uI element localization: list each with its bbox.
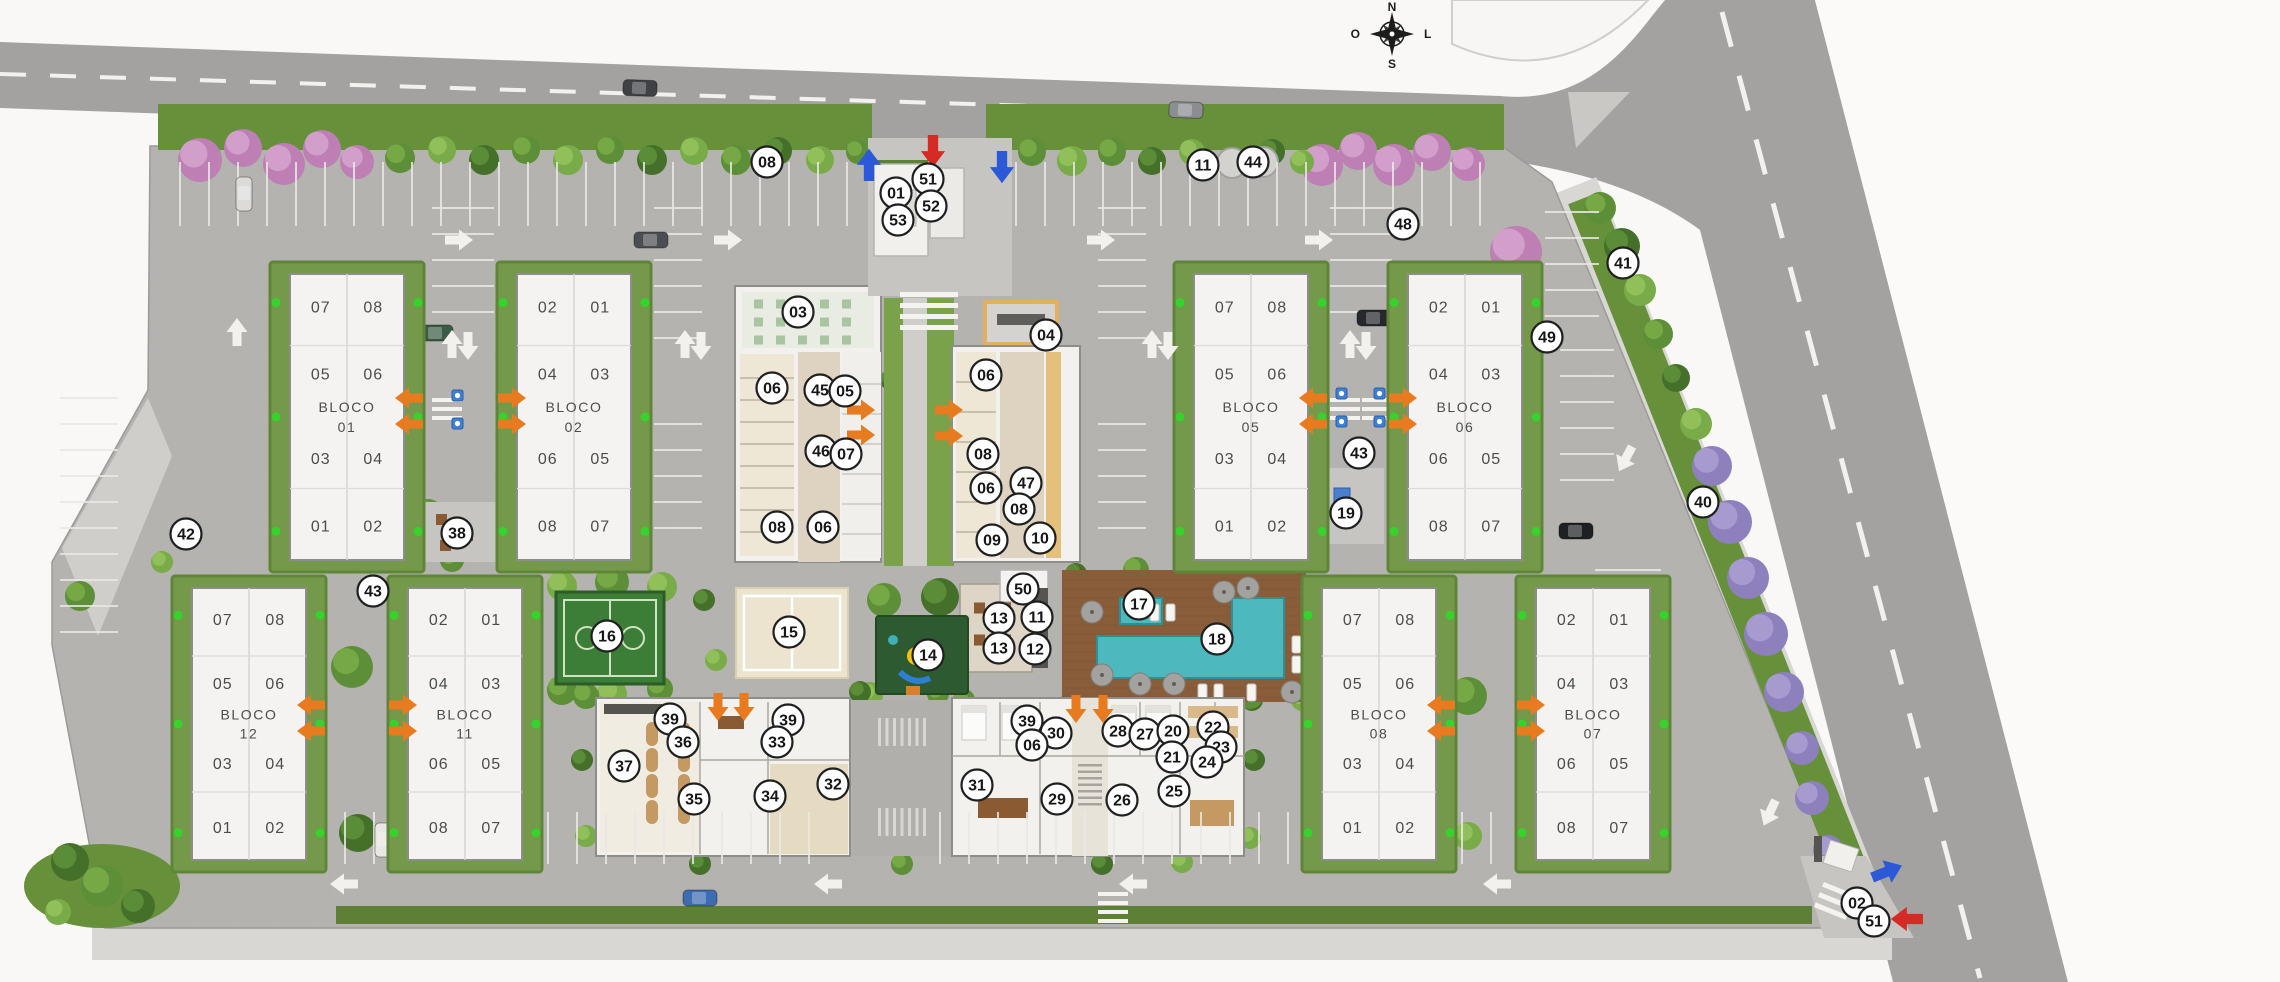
purple-tree-icon: [1795, 781, 1829, 815]
parked-car: [683, 890, 717, 906]
garden-light-icon: [1304, 720, 1313, 729]
unit-number: 03: [1481, 367, 1501, 384]
garden-light-icon: [1518, 611, 1527, 620]
compass-east-label: L: [1424, 27, 1431, 41]
unit-number: 03: [1215, 451, 1235, 468]
tree-icon: [385, 143, 415, 173]
tree-icon: [121, 889, 155, 923]
marker-number: 21: [1163, 750, 1181, 767]
amenity-marker-38[interactable]: 38: [442, 518, 473, 549]
unit-number: 04: [1429, 367, 1449, 384]
tree-icon: [45, 899, 71, 925]
amenity-marker-49[interactable]: 49: [1532, 322, 1563, 353]
garden-light-icon: [1660, 828, 1669, 837]
marker-number: 25: [1165, 784, 1183, 801]
garden-light-icon: [316, 611, 325, 620]
amenity-marker-04[interactable]: 04: [1031, 320, 1062, 351]
unit-number: 08: [538, 518, 558, 535]
garden-light-icon: [1660, 611, 1669, 620]
block-number: 07: [1584, 725, 1603, 741]
block-number: 05: [1242, 419, 1261, 435]
tree-icon: [1454, 822, 1482, 850]
unit-number: 08: [1267, 299, 1287, 316]
garden-light-icon: [1532, 298, 1541, 307]
block-number: 08: [1370, 725, 1389, 741]
amenity-marker-26[interactable]: 26: [1107, 785, 1138, 816]
unit-number: 06: [1429, 451, 1449, 468]
amenity-marker-41[interactable]: 41: [1608, 248, 1639, 279]
compass-south-label: S: [1388, 57, 1396, 71]
flowering-tree-icon: [340, 145, 374, 179]
block-label: BLOCO: [220, 706, 277, 722]
tree-icon: [575, 825, 597, 847]
marker-number: 31: [968, 778, 986, 795]
unit-number: 03: [311, 451, 331, 468]
marker-number: 32: [824, 777, 842, 794]
garden-light-icon: [532, 720, 541, 729]
marker-number: 04: [1037, 328, 1055, 345]
unit-number: 02: [363, 518, 383, 535]
unit-number: 01: [1481, 299, 1501, 316]
lounger: [1247, 684, 1256, 701]
unit-number: 06: [363, 367, 383, 384]
unit-number: 03: [213, 756, 233, 773]
flowering-tree-icon: [263, 143, 305, 185]
residential-block-06[interactable]: 0201040306050807BLOCO06: [1388, 262, 1542, 572]
unit-number: 05: [1215, 367, 1235, 384]
garden-light-icon: [1176, 298, 1185, 307]
amenity-marker-08[interactable]: 08: [968, 439, 999, 470]
parked-car: [236, 177, 252, 211]
accessible-parking-icon: [452, 418, 463, 429]
marker-number: 12: [1026, 642, 1044, 659]
marker-number: 51: [1865, 914, 1883, 931]
tree-icon: [867, 583, 901, 617]
amenity-marker-09[interactable]: 09: [977, 525, 1008, 556]
block-label: BLOCO: [1222, 399, 1279, 415]
marker-number: 08: [758, 155, 776, 172]
residential-block-08[interactable]: 0708050603040102BLOCO08: [1302, 576, 1456, 872]
amenity-marker-43[interactable]: 43: [1344, 438, 1375, 469]
garden-light-icon: [532, 828, 541, 837]
amenity-marker-52[interactable]: 52: [916, 191, 947, 222]
umbrella-icon: [1163, 673, 1185, 695]
residential-block-02[interactable]: 0201040306050807BLOCO02: [497, 262, 651, 572]
garden-light-icon: [1660, 720, 1669, 729]
tree-icon: [1018, 138, 1046, 166]
parked-car: [634, 232, 668, 248]
parked-car: [1169, 101, 1204, 118]
umbrella-icon: [1081, 601, 1103, 623]
marker-number: 37: [615, 759, 633, 776]
marker-number: 20: [1164, 724, 1182, 741]
marker-number: 13: [990, 641, 1008, 658]
amenity-marker-12[interactable]: 12: [1020, 634, 1051, 665]
unit-number: 06: [429, 756, 449, 773]
unit-number: 03: [590, 367, 610, 384]
block-number: 11: [456, 725, 474, 741]
tree-icon: [806, 146, 834, 174]
unit-number: 04: [1557, 676, 1577, 693]
residential-block-05[interactable]: 0708050603040102BLOCO05: [1174, 262, 1328, 572]
marker-number: 19: [1337, 506, 1355, 523]
marker-number: 29: [1048, 792, 1066, 809]
unit-number: 01: [311, 518, 331, 535]
marker-number: 06: [763, 381, 781, 398]
parked-car: [1357, 310, 1391, 326]
garden-light-icon: [1176, 413, 1185, 422]
unit-number: 05: [1609, 756, 1629, 773]
tree-icon: [1584, 192, 1616, 224]
amenity-marker-32[interactable]: 32: [818, 769, 849, 800]
garden-light-icon: [499, 527, 508, 536]
flowering-tree-icon: [1339, 132, 1377, 170]
purple-tree-icon: [1744, 612, 1788, 656]
amenity-marker-50[interactable]: 50: [1008, 574, 1039, 605]
unit-number: 08: [1395, 612, 1415, 629]
amenity-marker-25[interactable]: 25: [1159, 776, 1190, 807]
amenity-marker-06[interactable]: 06: [971, 473, 1002, 504]
accessible-parking-icon: [1336, 416, 1347, 427]
unit-number: 05: [213, 676, 233, 693]
amenity-marker-08[interactable]: 08: [752, 147, 783, 178]
marker-number: 50: [1014, 582, 1032, 599]
unit-number: 06: [265, 676, 285, 693]
marker-number: 36: [674, 735, 692, 752]
garden-light-icon: [1390, 298, 1399, 307]
marker-number: 16: [598, 629, 616, 646]
tree-icon: [693, 589, 715, 611]
unit-number: 02: [265, 820, 285, 837]
garden-light-icon: [1390, 527, 1399, 536]
marker-number: 42: [177, 527, 195, 544]
marker-number: 17: [1130, 597, 1148, 614]
unit-number: 04: [538, 367, 558, 384]
marker-number: 15: [780, 625, 798, 642]
amenity-marker-17[interactable]: 17: [1124, 589, 1155, 620]
amenity-marker-11[interactable]: 11: [1188, 150, 1219, 181]
unit-number: 03: [1609, 676, 1629, 693]
amenity-marker-06[interactable]: 06: [757, 373, 788, 404]
umbrella-icon: [1237, 577, 1259, 599]
tree-icon: [891, 853, 913, 875]
marker-number: 51: [919, 172, 937, 189]
unit-number: 05: [1343, 676, 1363, 693]
marker-number: 41: [1614, 256, 1632, 273]
marker-number: 52: [922, 199, 940, 216]
unit-number: 07: [1215, 299, 1235, 316]
unit-number: 01: [590, 299, 610, 316]
block-label: BLOCO: [1350, 706, 1407, 722]
amenity-marker-06[interactable]: 06: [1017, 730, 1048, 761]
unit-number: 06: [1267, 367, 1287, 384]
amenity-marker-36[interactable]: 36: [668, 727, 699, 758]
tree-icon: [469, 145, 499, 175]
garden-light-icon: [174, 828, 183, 837]
garden-light-icon: [1304, 828, 1313, 837]
garden-light-icon: [1318, 527, 1327, 536]
garden-light-icon: [272, 527, 281, 536]
unit-number: 08: [363, 299, 383, 316]
flowering-tree-icon: [1413, 133, 1451, 171]
marker-number: 47: [1017, 476, 1035, 493]
parked-car: [623, 79, 658, 96]
unit-number: 01: [481, 612, 501, 629]
amenity-marker-27[interactable]: 27: [1130, 719, 1161, 750]
garden-light-icon: [1318, 298, 1327, 307]
marker-number: 49: [1538, 330, 1556, 347]
purple-tree-icon: [1785, 731, 1819, 765]
tree-icon: [921, 578, 959, 616]
amenity-marker-37[interactable]: 37: [609, 751, 640, 782]
amenity-marker-08[interactable]: 08: [1004, 494, 1035, 525]
block-label: BLOCO: [545, 399, 602, 415]
unit-number: 02: [1395, 820, 1415, 837]
tree-icon: [1098, 138, 1126, 166]
residential-block-07[interactable]: 0201040306050807BLOCO07: [1516, 576, 1670, 872]
amenity-marker-16[interactable]: 16: [592, 621, 623, 652]
unit-number: 06: [1557, 756, 1577, 773]
marker-number: 08: [974, 447, 992, 464]
unit-number: 08: [265, 612, 285, 629]
marker-number: 08: [768, 520, 786, 537]
unit-number: 07: [311, 299, 331, 316]
residential-block-12[interactable]: 0708050603040102BLOCO12: [172, 576, 326, 872]
tree-icon: [849, 681, 871, 703]
amenity-marker-21[interactable]: 21: [1157, 742, 1188, 773]
amenity-marker-08[interactable]: 08: [762, 512, 793, 543]
unit-number: 04: [363, 451, 383, 468]
unit-number: 05: [590, 451, 610, 468]
tree-icon: [512, 136, 540, 164]
marker-number: 11: [1029, 610, 1046, 627]
pool-deck: [1062, 570, 1306, 703]
marker-number: 06: [977, 368, 995, 385]
garden-light-icon: [1446, 611, 1455, 620]
lounger: [1166, 604, 1175, 621]
marker-number: 01: [887, 186, 905, 203]
marker-number: 18: [1208, 632, 1226, 649]
garden-light-icon: [1518, 828, 1527, 837]
marker-number: 38: [448, 526, 466, 543]
marker-number: 27: [1136, 727, 1154, 744]
garden-light-icon: [1532, 527, 1541, 536]
unit-number: 01: [213, 820, 233, 837]
tree-icon: [151, 551, 173, 573]
marker-number: 07: [837, 447, 855, 464]
block-label: BLOCO: [318, 399, 375, 415]
unit-number: 07: [1481, 518, 1501, 535]
block-number: 06: [1456, 419, 1475, 435]
unit-number: 05: [1481, 451, 1501, 468]
amenity-marker-33[interactable]: 33: [762, 727, 793, 758]
unit-number: 04: [429, 676, 449, 693]
unit-number: 05: [311, 367, 331, 384]
amenity-marker-40[interactable]: 40: [1688, 487, 1719, 518]
umbrella-icon: [1091, 664, 1113, 686]
marker-number: 40: [1694, 495, 1712, 512]
amenity-marker-10[interactable]: 10: [1025, 523, 1056, 554]
block-label: BLOCO: [436, 706, 493, 722]
accessible-parking-icon: [452, 390, 463, 401]
flowering-tree-icon: [303, 130, 341, 168]
garden-light-icon: [641, 298, 650, 307]
amenity-marker-42[interactable]: 42: [171, 519, 202, 550]
tree-icon: [51, 843, 89, 881]
tree-icon: [1243, 749, 1265, 771]
unit-number: 08: [429, 820, 449, 837]
flowering-tree-icon: [178, 138, 222, 182]
marker-number: 05: [836, 384, 854, 401]
marker-number: 06: [1023, 738, 1041, 755]
unit-number: 07: [481, 820, 501, 837]
unit-number: 08: [1557, 820, 1577, 837]
marker-number: 46: [812, 444, 830, 461]
purple-tree-icon: [1727, 557, 1769, 599]
unit-number: 02: [538, 299, 558, 316]
lounger: [1292, 636, 1301, 653]
garden-light-icon: [272, 298, 281, 307]
garden-light-icon: [390, 828, 399, 837]
unit-number: 08: [1429, 518, 1449, 535]
block-label: BLOCO: [1564, 706, 1621, 722]
marker-number: 35: [685, 792, 703, 809]
marker-number: 34: [761, 789, 779, 806]
tree-icon: [596, 136, 624, 164]
amenity-marker-07[interactable]: 07: [831, 439, 862, 470]
unit-number: 02: [1557, 612, 1577, 629]
unit-number: 06: [1395, 676, 1415, 693]
tree-icon: [81, 865, 123, 907]
garden-light-icon: [1532, 413, 1541, 422]
amenity-marker-51[interactable]: 51: [1859, 906, 1890, 937]
amenity-marker-35[interactable]: 35: [679, 784, 710, 815]
unit-number: 02: [429, 612, 449, 629]
amenity-marker-29[interactable]: 29: [1042, 784, 1073, 815]
residential-block-01[interactable]: 0708050603040102BLOCO01: [270, 262, 424, 572]
marker-number: 45: [811, 383, 829, 400]
tree-icon: [571, 749, 593, 771]
tree-icon: [1057, 146, 1087, 176]
marker-number: 06: [977, 481, 995, 498]
tree-icon: [1290, 150, 1314, 174]
garden-light-icon: [414, 527, 423, 536]
amenity-marker-44[interactable]: 44: [1238, 147, 1269, 178]
amenity-marker-48[interactable]: 48: [1388, 209, 1419, 240]
unit-number: 02: [1267, 518, 1287, 535]
unit-number: 05: [481, 756, 501, 773]
garden-light-icon: [1176, 527, 1185, 536]
marker-number: 14: [919, 648, 937, 665]
block-label: BLOCO: [1436, 399, 1493, 415]
unit-number: 07: [1343, 612, 1363, 629]
parked-car: [1559, 523, 1593, 539]
amenity-entry-court: [852, 700, 952, 856]
tree-icon: [1643, 319, 1673, 349]
tree-icon: [331, 646, 373, 688]
amenity-marker-13[interactable]: 13: [984, 633, 1015, 664]
unit-number: 07: [213, 612, 233, 629]
garden-light-icon: [532, 611, 541, 620]
amenity-marker-06[interactable]: 06: [971, 360, 1002, 391]
marker-number: 13: [990, 611, 1008, 628]
tree-icon: [1624, 274, 1656, 306]
umbrella-icon: [1213, 581, 1235, 603]
unit-number: 04: [1395, 756, 1415, 773]
garden-light-icon: [390, 611, 399, 620]
marker-number: 26: [1113, 793, 1131, 810]
unit-number: 04: [1267, 451, 1287, 468]
compass-west-label: O: [1351, 27, 1360, 41]
unit-number: 07: [1609, 820, 1629, 837]
tree-icon: [705, 649, 727, 671]
tree-icon: [1680, 408, 1712, 440]
garden-light-icon: [272, 413, 281, 422]
amenity-marker-14[interactable]: 14: [913, 640, 944, 671]
tree-icon: [1662, 364, 1690, 392]
marker-number: 39: [1018, 714, 1036, 731]
marker-number: 03: [789, 305, 807, 322]
marker-number: 28: [1109, 724, 1127, 741]
lounger: [1292, 656, 1301, 673]
amenity-marker-03[interactable]: 03: [783, 297, 814, 328]
amenity-marker-24[interactable]: 24: [1192, 747, 1223, 778]
residential-block-11[interactable]: 0201040306050807BLOCO11: [388, 576, 542, 872]
garden-light-icon: [1446, 828, 1455, 837]
flowering-tree-icon: [224, 129, 262, 167]
unit-number: 06: [538, 451, 558, 468]
purple-tree-icon: [1692, 446, 1732, 486]
unit-number: 07: [590, 518, 610, 535]
garden-light-icon: [641, 527, 650, 536]
garden-light-icon: [316, 828, 325, 837]
compass-north-label: N: [1388, 0, 1397, 14]
amenity-marker-11[interactable]: 11: [1022, 602, 1053, 633]
amenity-marker-43[interactable]: 43: [358, 576, 389, 607]
garden-light-icon: [414, 298, 423, 307]
amenity-marker-31[interactable]: 31: [962, 770, 993, 801]
tree-icon: [680, 137, 708, 165]
unit-number: 01: [1215, 518, 1235, 535]
unit-number: 03: [1343, 756, 1363, 773]
garden-light-icon: [174, 720, 183, 729]
garden-light-icon: [641, 413, 650, 422]
marker-number: 48: [1394, 217, 1412, 234]
amenity-marker-05[interactable]: 05: [830, 376, 861, 407]
amenity-marker-06[interactable]: 06: [808, 512, 839, 543]
amenity-marker-15[interactable]: 15: [774, 617, 805, 648]
garden-light-icon: [1304, 611, 1313, 620]
amenity-marker-13[interactable]: 13: [984, 603, 1015, 634]
garden-light-icon: [499, 298, 508, 307]
amenity-marker-34[interactable]: 34: [755, 781, 786, 812]
unit-number: 03: [481, 676, 501, 693]
marker-number: 10: [1031, 531, 1049, 548]
site-plan-map: 0708050603040102BLOCO010201040306050807B…: [0, 0, 2280, 982]
unit-number: 01: [1609, 612, 1629, 629]
marker-number: 43: [1350, 446, 1368, 463]
amenity-marker-18[interactable]: 18: [1202, 624, 1233, 655]
marker-number: 11: [1195, 158, 1212, 175]
unit-number: 04: [265, 756, 285, 773]
unit-number: 02: [1429, 299, 1449, 316]
marker-number: 24: [1198, 755, 1216, 772]
accessible-parking-icon: [1374, 416, 1385, 427]
amenity-marker-19[interactable]: 19: [1331, 498, 1362, 529]
amenity-marker-53[interactable]: 53: [883, 205, 914, 236]
marker-number: 09: [983, 533, 1001, 550]
marker-number: 06: [814, 520, 832, 537]
